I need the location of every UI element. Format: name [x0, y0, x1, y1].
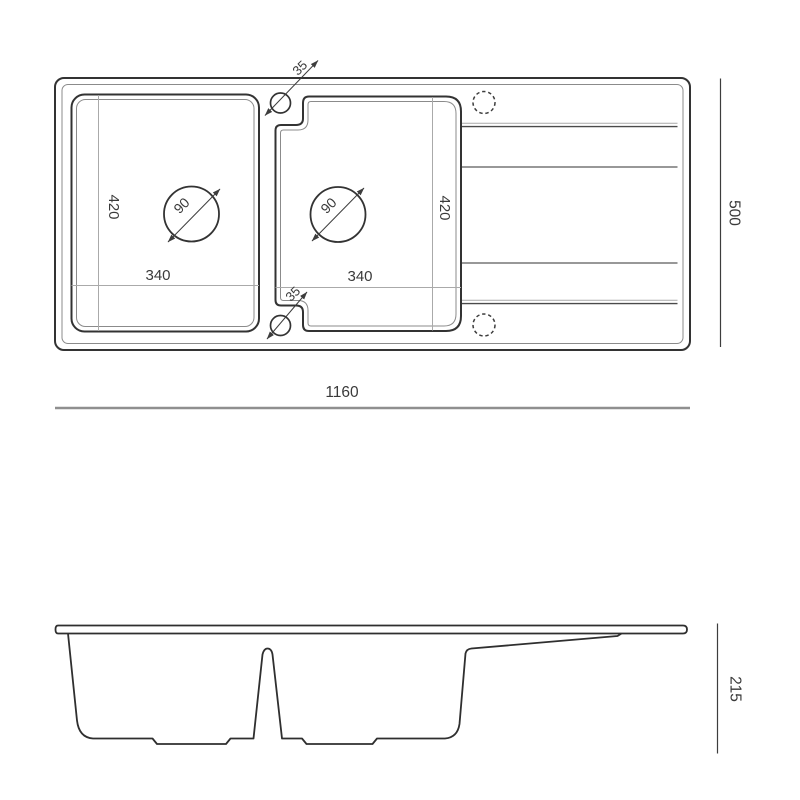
right-bowl-width-label: 340	[347, 268, 372, 285]
sink-side-view: 215	[56, 624, 744, 754]
sink-drawing-svg: 90 90 35 35	[0, 0, 800, 800]
sink-top-view: 90 90 35 35	[55, 57, 743, 408]
right-bowl-depth-label: 420	[436, 195, 453, 220]
side-depth-label: 215	[727, 676, 744, 702]
technical-drawing-canvas: 90 90 35 35	[0, 0, 800, 800]
sink-outer-edge	[55, 78, 690, 350]
side-view-bowls-profile	[68, 634, 622, 745]
left-bowl-depth-label: 420	[105, 194, 122, 219]
left-bowl-width-label: 340	[145, 267, 170, 284]
tap-hole-top-label: 35	[289, 57, 310, 78]
overall-width-label: 1160	[325, 384, 359, 401]
overall-depth-label: 500	[726, 200, 743, 226]
side-view-rim-flange	[56, 626, 688, 634]
